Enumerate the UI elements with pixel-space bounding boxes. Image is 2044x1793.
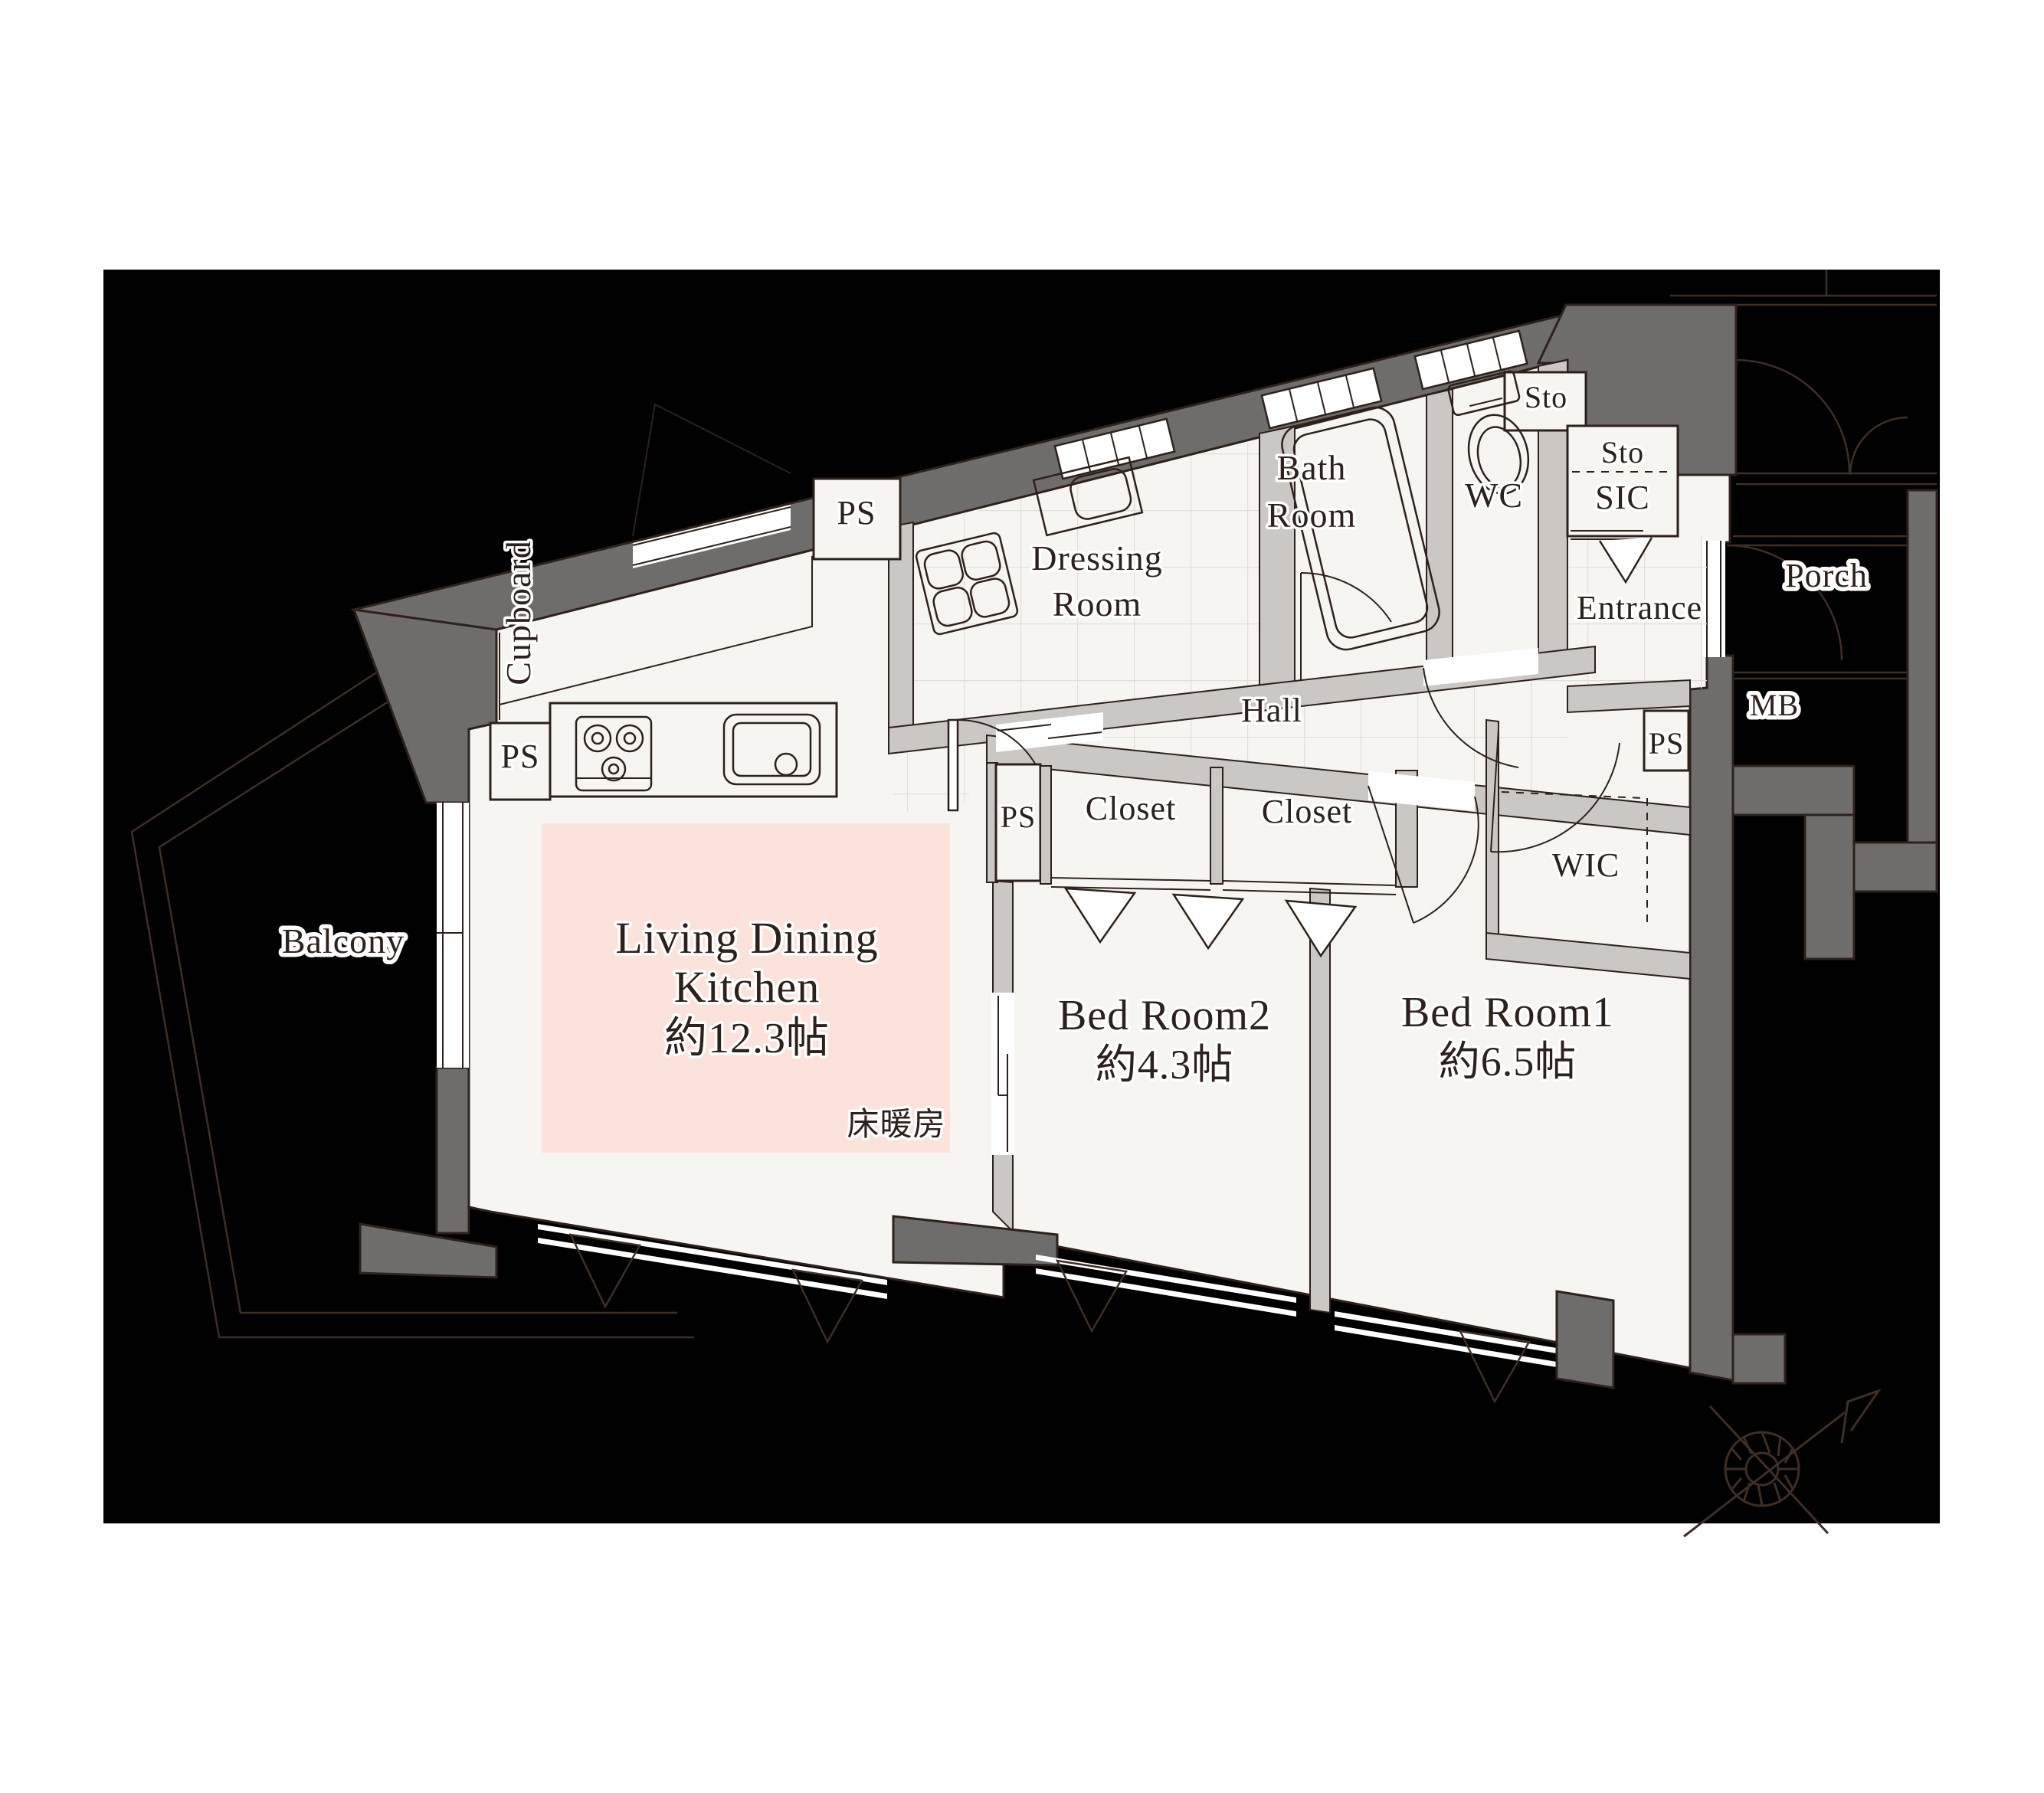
label-dressing-line1: Dressing bbox=[1031, 538, 1163, 577]
label-bedroom2-line1: Bed Room2 bbox=[1058, 992, 1271, 1039]
label-bath-line2: Room bbox=[1267, 496, 1356, 535]
label-bedroom1-line1: Bed Room1 bbox=[1401, 989, 1614, 1036]
label-mb: MB bbox=[1750, 688, 1799, 722]
label-wc: WC bbox=[1465, 476, 1523, 515]
label-sto-top: Sto bbox=[1525, 380, 1567, 414]
label-ps-right: PS bbox=[1649, 726, 1685, 761]
label-bedroom1-line2: 約6.5帖 bbox=[1439, 1039, 1577, 1085]
ldk-left-window bbox=[437, 803, 469, 1068]
label-hall: Hall bbox=[1241, 692, 1302, 729]
label-ps-mid: PS bbox=[1001, 800, 1037, 834]
wall-end-br1 bbox=[1557, 1291, 1613, 1388]
label-bath-line1: Bath bbox=[1277, 448, 1347, 487]
label-closet-1: Closet bbox=[1086, 790, 1176, 827]
label-cupboard: Cupboard bbox=[499, 540, 538, 685]
label-ldk-line3: 約12.3帖 bbox=[664, 1015, 830, 1062]
label-sto-sic: Sto bbox=[1601, 435, 1644, 470]
ldk-bedroom2-sliding-door bbox=[991, 993, 1014, 1155]
label-porch: Porch bbox=[1785, 557, 1868, 594]
label-wic: WIC bbox=[1552, 846, 1620, 884]
floor-plan-page: BalconyCupboardPSPSDressingRoomBathRoomW… bbox=[0, 0, 2044, 1793]
label-closet-2: Closet bbox=[1262, 793, 1352, 830]
label-ps-kitchen: PS bbox=[501, 738, 540, 775]
label-dressing-line2: Room bbox=[1053, 584, 1142, 623]
label-balcony: Balcony bbox=[282, 921, 405, 960]
label-ps-top: PS bbox=[837, 494, 876, 532]
label-floor-heating: 床暖房 bbox=[847, 1108, 945, 1143]
floor-plan-svg: BalconyCupboardPSPSDressingRoomBathRoomW… bbox=[0, 0, 2044, 1793]
label-ldk-line2: Kitchen bbox=[674, 962, 821, 1012]
label-ldk-line1: Living Dining bbox=[615, 913, 878, 963]
label-bedroom2-line2: 約4.3帖 bbox=[1096, 1042, 1234, 1088]
label-sic: SIC bbox=[1595, 479, 1649, 516]
label-entrance: Entrance bbox=[1577, 589, 1702, 627]
